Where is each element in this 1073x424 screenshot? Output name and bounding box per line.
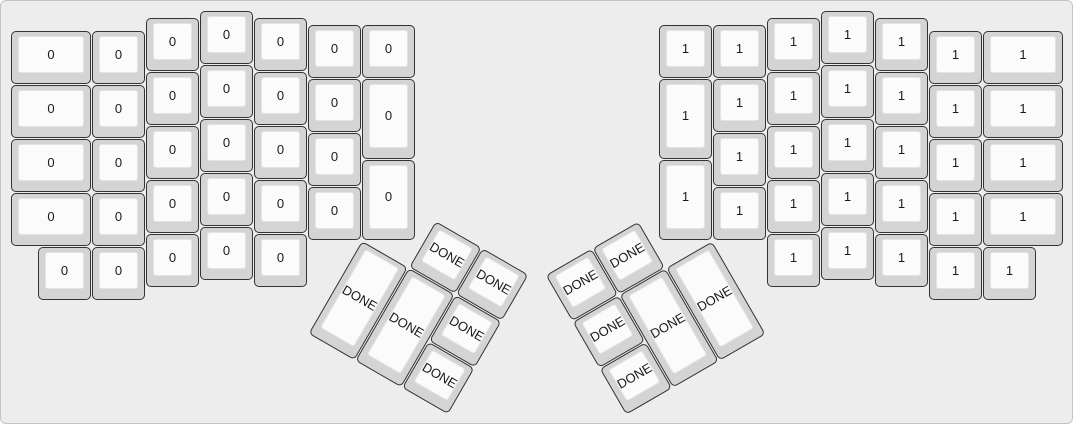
key-label: 1 [682, 109, 689, 122]
key-label: 1 [790, 35, 797, 48]
keytop: 0 [99, 252, 138, 289]
key[interactable]: 1 [659, 160, 712, 240]
key[interactable]: 1 [767, 18, 820, 71]
key[interactable]: 1 [821, 173, 874, 226]
key[interactable]: 0 [308, 25, 361, 78]
key[interactable]: 1 [713, 187, 766, 240]
key[interactable]: 0 [146, 234, 199, 287]
key-label: 0 [277, 197, 284, 210]
key[interactable]: 1 [983, 139, 1063, 192]
key-label: 1 [898, 143, 905, 156]
key[interactable]: 1 [767, 72, 820, 125]
keytop: 1 [990, 144, 1056, 181]
keytop: 1 [828, 124, 867, 161]
keyboard-canvas: 0000000000000000000000000000000011111111… [0, 0, 1073, 424]
key[interactable]: 1 [821, 119, 874, 172]
keytop: 0 [261, 23, 300, 60]
key-label: DONE [608, 240, 647, 270]
key-label: 1 [844, 82, 851, 95]
keytop: 1 [936, 252, 975, 289]
key-label: 0 [331, 204, 338, 217]
keytop: 1 [936, 90, 975, 127]
key[interactable]: 0 [146, 18, 199, 71]
key[interactable]: 0 [308, 133, 361, 186]
key-label: 0 [277, 89, 284, 102]
keytop: 1 [828, 178, 867, 215]
key-label: DONE [387, 309, 426, 339]
key[interactable]: 0 [11, 85, 91, 138]
key[interactable]: 0 [92, 139, 145, 192]
key[interactable]: 0 [254, 18, 307, 71]
key-label: 0 [223, 136, 230, 149]
key-label: 0 [115, 156, 122, 169]
keytop: 0 [315, 192, 354, 229]
key-label: 1 [736, 96, 743, 109]
key[interactable]: 1 [875, 126, 928, 179]
keytop: 0 [261, 239, 300, 276]
keytop: 0 [99, 36, 138, 73]
keytop: 0 [369, 84, 408, 148]
key[interactable]: 1 [929, 31, 982, 84]
key-label: 1 [790, 251, 797, 264]
key-label: 1 [1019, 102, 1026, 115]
key-label: DONE [588, 314, 627, 344]
keytop: 0 [153, 239, 192, 276]
key[interactable]: 0 [200, 119, 253, 172]
key-label: 1 [736, 42, 743, 55]
key-label: 0 [277, 251, 284, 264]
keytop: 0 [99, 90, 138, 127]
key-label: 0 [47, 102, 54, 115]
keytop: 1 [720, 84, 759, 121]
key-label: DONE [615, 360, 654, 390]
keytop: 0 [369, 165, 408, 229]
key-label: 0 [331, 42, 338, 55]
key-label: 1 [682, 190, 689, 203]
keytop: 0 [207, 124, 246, 161]
key[interactable]: 0 [254, 72, 307, 125]
key-label: 0 [223, 82, 230, 95]
key[interactable]: 1 [713, 25, 766, 78]
key-label: 0 [169, 143, 176, 156]
key[interactable]: 1 [929, 193, 982, 246]
key[interactable]: 0 [308, 79, 361, 132]
key-label: 1 [952, 102, 959, 115]
key[interactable]: 0 [254, 234, 307, 287]
keytop: 0 [369, 30, 408, 67]
keytop: 0 [45, 252, 84, 289]
key[interactable]: 0 [362, 79, 415, 159]
keytop: 0 [153, 185, 192, 222]
key-label: 0 [47, 48, 54, 61]
keytop: 1 [774, 77, 813, 114]
key-label: 1 [736, 150, 743, 163]
key[interactable]: 1 [929, 139, 982, 192]
key[interactable]: 1 [983, 85, 1063, 138]
key-label: DONE [695, 283, 734, 313]
keytop: 0 [18, 144, 84, 181]
key[interactable]: 0 [92, 247, 145, 300]
keytop: 1 [936, 144, 975, 181]
keytop: 1 [990, 36, 1056, 73]
key-label: DONE [447, 313, 486, 343]
key[interactable]: 0 [38, 247, 91, 300]
key-label: 1 [790, 89, 797, 102]
keytop: DONE [421, 229, 473, 281]
keytop: 1 [882, 77, 921, 114]
key-label: 0 [277, 35, 284, 48]
keytop: 1 [882, 131, 921, 168]
key-label: 0 [115, 48, 122, 61]
key[interactable]: 0 [308, 187, 361, 240]
key-label: 0 [223, 244, 230, 257]
key-label: 0 [385, 190, 392, 203]
key-label: 1 [898, 251, 905, 264]
key[interactable]: 1 [983, 193, 1063, 246]
key-label: 0 [277, 143, 284, 156]
key-label: 0 [115, 102, 122, 115]
key-label: DONE [648, 310, 687, 340]
key[interactable]: 0 [92, 85, 145, 138]
key-label: 0 [331, 96, 338, 109]
keytop: 0 [207, 178, 246, 215]
key[interactable]: 0 [11, 139, 91, 192]
keytop: 0 [153, 131, 192, 168]
key[interactable]: 0 [92, 193, 145, 246]
keytop: 1 [990, 252, 1029, 289]
key-label: 1 [898, 89, 905, 102]
key-label: 1 [952, 210, 959, 223]
keytop: 1 [936, 198, 975, 235]
keytop: 0 [153, 77, 192, 114]
key-label: 1 [790, 143, 797, 156]
key-label: 0 [223, 28, 230, 41]
key[interactable]: 1 [875, 180, 928, 233]
key[interactable]: 1 [929, 85, 982, 138]
keytop: DONE [554, 256, 606, 308]
key[interactable]: 1 [929, 247, 982, 300]
key-label: 1 [1006, 264, 1013, 277]
key-label: 0 [169, 89, 176, 102]
key-label: DONE [340, 282, 379, 312]
key-label: 1 [898, 197, 905, 210]
keytop: 1 [882, 239, 921, 276]
key-label: 1 [952, 48, 959, 61]
keytop: 1 [990, 198, 1056, 235]
keytop: 0 [261, 185, 300, 222]
key[interactable]: 1 [713, 133, 766, 186]
key[interactable]: 1 [767, 234, 820, 287]
key[interactable]: 1 [659, 25, 712, 78]
keytop: 0 [315, 84, 354, 121]
key[interactable]: 1 [767, 180, 820, 233]
key-label: 1 [1019, 48, 1026, 61]
key[interactable]: 1 [821, 65, 874, 118]
key-label: 1 [844, 136, 851, 149]
key[interactable]: 1 [767, 126, 820, 179]
keytop: 1 [936, 36, 975, 73]
key-label: 1 [790, 197, 797, 210]
keytop: 0 [153, 23, 192, 60]
keytop: 0 [207, 70, 246, 107]
keytop: DONE [468, 256, 520, 308]
keytop: DONE [601, 229, 653, 281]
keytop: 0 [207, 16, 246, 53]
key[interactable]: 1 [659, 79, 712, 159]
key[interactable]: 0 [254, 180, 307, 233]
keytop: 1 [828, 16, 867, 53]
key[interactable]: 1 [713, 79, 766, 132]
key[interactable]: 0 [362, 25, 415, 78]
key[interactable]: 0 [146, 72, 199, 125]
keytop: 0 [261, 131, 300, 168]
keytop: 1 [882, 185, 921, 222]
key[interactable]: 0 [200, 227, 253, 280]
key[interactable]: 0 [92, 31, 145, 84]
keytop: 1 [882, 23, 921, 60]
key-label: DONE [420, 360, 459, 390]
key-label: 1 [844, 244, 851, 257]
key-label: 0 [115, 264, 122, 277]
keytop: 1 [990, 90, 1056, 127]
key-label: 0 [115, 210, 122, 223]
keytop: 1 [666, 84, 705, 148]
key-label: 0 [169, 197, 176, 210]
key-label: 1 [1019, 156, 1026, 169]
key-label: 0 [331, 150, 338, 163]
key[interactable]: 1 [983, 31, 1063, 84]
key-label: 1 [844, 28, 851, 41]
keytop: 0 [18, 198, 84, 235]
keytop: 0 [99, 144, 138, 181]
key-label: 1 [682, 42, 689, 55]
keytop: 1 [828, 70, 867, 107]
keytop: 1 [774, 23, 813, 60]
keytop: 0 [18, 36, 84, 73]
key-label: 1 [952, 156, 959, 169]
keytop: 1 [828, 232, 867, 269]
key[interactable]: 1 [875, 18, 928, 71]
key-label: 0 [47, 156, 54, 169]
keytop: 0 [261, 77, 300, 114]
key-label: DONE [427, 239, 466, 269]
key[interactable]: 0 [254, 126, 307, 179]
keytop: 1 [720, 192, 759, 229]
keytop: 1 [774, 185, 813, 222]
keytop: 0 [315, 30, 354, 67]
key[interactable]: 1 [821, 227, 874, 280]
key-label: DONE [474, 266, 513, 296]
key-label: 1 [898, 35, 905, 48]
key-label: 0 [169, 35, 176, 48]
key-label: 1 [952, 264, 959, 277]
keytop: 0 [18, 90, 84, 127]
key-label: 1 [1019, 210, 1026, 223]
keytop: 1 [666, 165, 705, 229]
key-label: 0 [223, 190, 230, 203]
keytop: 1 [774, 131, 813, 168]
key-label: 1 [844, 190, 851, 203]
keytop: 1 [666, 30, 705, 67]
key[interactable]: 1 [875, 72, 928, 125]
key[interactable]: 0 [11, 193, 91, 246]
key-label: 0 [385, 42, 392, 55]
keytop: 0 [99, 198, 138, 235]
key[interactable]: 0 [200, 11, 253, 64]
key-label: 0 [61, 264, 68, 277]
keytop: 0 [315, 138, 354, 175]
key[interactable]: 0 [200, 65, 253, 118]
key-label: 0 [47, 210, 54, 223]
key[interactable]: 0 [146, 180, 199, 233]
keytop: 1 [720, 30, 759, 67]
key[interactable]: 0 [11, 31, 91, 84]
key[interactable]: 0 [362, 160, 415, 240]
key[interactable]: 0 [146, 126, 199, 179]
key-label: 1 [736, 204, 743, 217]
key-label: 0 [169, 251, 176, 264]
keytop: 0 [207, 232, 246, 269]
key[interactable]: 1 [821, 11, 874, 64]
key-label: 0 [385, 109, 392, 122]
key[interactable]: 1 [875, 234, 928, 287]
keytop: 1 [720, 138, 759, 175]
keytop: 1 [774, 239, 813, 276]
key-label: DONE [561, 267, 600, 297]
key[interactable]: 1 [983, 247, 1036, 300]
key[interactable]: 0 [200, 173, 253, 226]
